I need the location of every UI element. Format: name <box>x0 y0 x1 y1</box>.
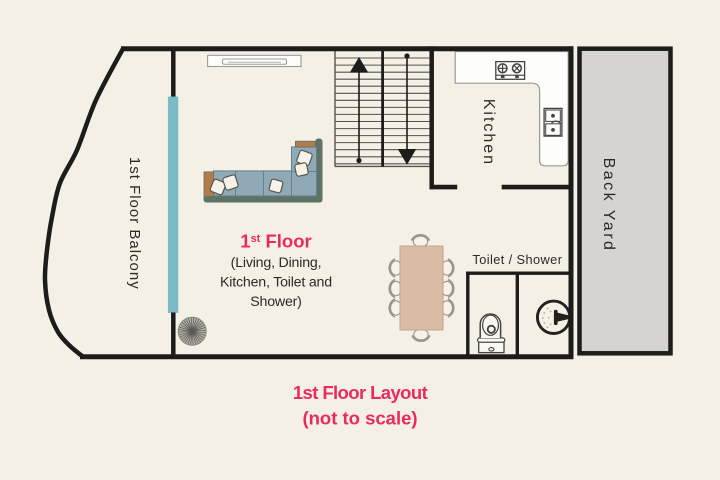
svg-text:1st Floor Balcony: 1st Floor Balcony <box>126 157 143 290</box>
svg-text:(Living, Dining,: (Living, Dining, <box>231 255 322 271</box>
svg-text:Kitchen, Toilet and: Kitchen, Toilet and <box>220 275 332 291</box>
svg-text:(not to scale): (not to scale) <box>302 407 417 428</box>
svg-text:Toilet / Shower: Toilet / Shower <box>472 252 562 267</box>
svg-text:Back Yard: Back Yard <box>600 158 617 253</box>
svg-text:Shower): Shower) <box>250 294 301 310</box>
svg-text:Kitchen: Kitchen <box>480 99 497 166</box>
svg-text:1st Floor Layout: 1st Floor Layout <box>293 382 428 403</box>
